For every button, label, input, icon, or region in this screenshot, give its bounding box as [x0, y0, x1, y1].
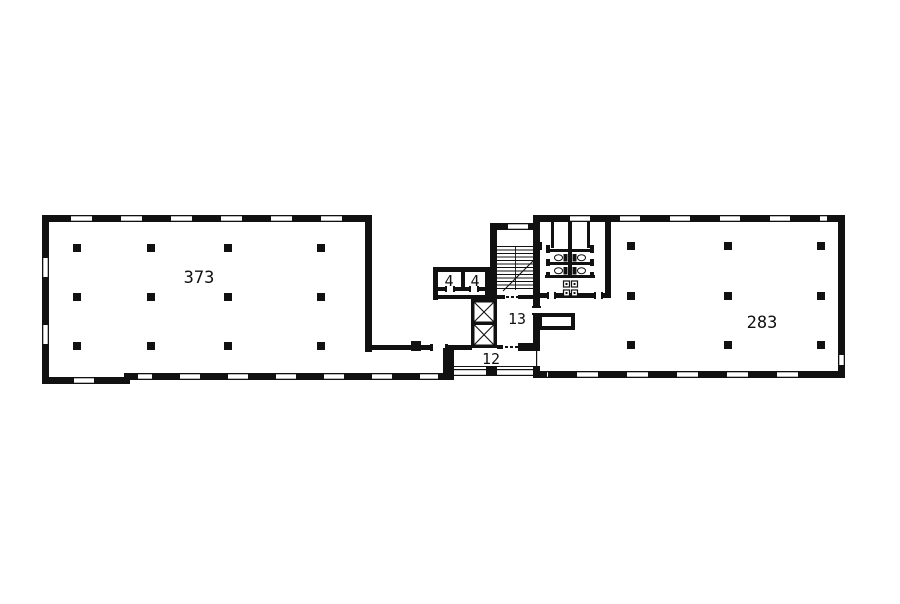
column-marker [817, 341, 825, 349]
column-marker [73, 244, 81, 252]
wc-stall-wall [546, 245, 550, 253]
wall-pier [443, 348, 454, 380]
exterior-wall-top-left-wing [42, 215, 372, 222]
elevator-wall [471, 345, 497, 349]
wc-stall-partition [549, 249, 591, 252]
window-opening [838, 355, 845, 365]
stairs-icon [497, 247, 534, 292]
wc-shaft-wall [551, 222, 554, 248]
right-wing: 283 [532, 215, 845, 378]
column-marker [411, 341, 421, 351]
cell-wall-front [454, 287, 470, 291]
room-label-lobby-13: 13 [508, 310, 526, 328]
elevator-wall [471, 299, 497, 303]
column-marker [627, 242, 635, 250]
room-label-cell-4a: 4 [444, 272, 453, 290]
elevator-icon [475, 303, 494, 322]
elevator-wall [471, 299, 475, 348]
exterior-wall-top-right-wing [533, 215, 845, 222]
column-marker [627, 341, 635, 349]
door-tick [554, 292, 556, 299]
corridor-wall [365, 345, 432, 350]
exterior-wall-bottom-right-wing [533, 371, 845, 378]
floor-plan-page: 373 12 [0, 0, 900, 604]
wc-stall-partition [549, 262, 591, 265]
column-marker [147, 244, 155, 252]
elevator-icon [475, 325, 494, 345]
column-marker [817, 242, 825, 250]
wall-right-wing-left [532, 215, 541, 378]
column-marker [73, 342, 81, 350]
annex-box [533, 313, 575, 330]
column-marker [224, 342, 232, 350]
room-label-left-hall: 373 [184, 268, 215, 288]
sink-icon [564, 281, 570, 287]
wc-stall-wall [546, 259, 550, 266]
column-marker [224, 244, 232, 252]
toilet-icon [573, 267, 586, 275]
wc-stall-partition [545, 275, 595, 278]
wc-wall-bottom [602, 293, 611, 298]
wc-wall-bottom [540, 293, 548, 298]
door-tick [601, 292, 603, 299]
room-label-corridor-12: 12 [482, 350, 500, 368]
column-marker [724, 242, 732, 250]
central-core: 4 4 [433, 223, 540, 351]
exterior-wall-bottom-left-wing [124, 373, 454, 380]
column-marker [627, 292, 635, 300]
window-opening [42, 325, 49, 344]
column-marker [224, 293, 232, 301]
window-opening [74, 377, 94, 384]
opening-threshold-line [536, 351, 537, 368]
column-marker [317, 244, 325, 252]
wc-stall-wall [590, 245, 594, 253]
elevator-wall [471, 322, 497, 326]
sink-icon [572, 281, 578, 287]
wc-wall-right [605, 222, 611, 298]
column-marker [817, 292, 825, 300]
window-opening [508, 223, 528, 230]
wall-jog [124, 373, 130, 384]
elevator-block [471, 299, 497, 348]
toilet-icon [555, 254, 568, 262]
wc-stall-wall [590, 259, 594, 266]
column-grid-right-hall [627, 242, 825, 349]
elevator-wall [494, 299, 498, 348]
sink-icon [564, 290, 570, 296]
window-opening [42, 258, 49, 277]
exterior-wall-left [42, 215, 49, 384]
left-wing: 373 [42, 215, 454, 384]
wall-left-wing-right [365, 215, 372, 352]
wc-shaft-wall [587, 222, 590, 248]
wall-pier [518, 343, 540, 351]
column-marker [724, 341, 732, 349]
exterior-wall-right [838, 215, 845, 378]
cell-wall-right [485, 267, 490, 295]
column-grid-left-hall [73, 244, 325, 350]
toilet-icon [573, 254, 586, 262]
cell-divider-wall [461, 270, 465, 289]
door-tick [532, 306, 541, 308]
wc-stall-wall [546, 272, 550, 278]
toilet-icon [555, 267, 568, 275]
door-tick [594, 292, 596, 299]
door-tick [430, 344, 433, 351]
floor-plan-canvas: 373 12 [0, 0, 900, 604]
column-marker [147, 293, 155, 301]
room-label-cell-4b: 4 [470, 272, 479, 290]
column-marker [73, 293, 81, 301]
room-label-right-hall: 283 [747, 313, 778, 333]
sink-icon [572, 290, 578, 296]
column-marker [317, 342, 325, 350]
stair-wall-left [490, 223, 497, 297]
lobby-wall [497, 345, 503, 349]
wc-block [540, 222, 611, 299]
column-marker [724, 292, 732, 300]
wc-stall-wall [590, 272, 594, 278]
column-marker [317, 293, 325, 301]
column-marker [147, 342, 155, 350]
stairwell [490, 223, 540, 297]
door-tick [547, 292, 549, 299]
wall-pier [534, 242, 542, 250]
